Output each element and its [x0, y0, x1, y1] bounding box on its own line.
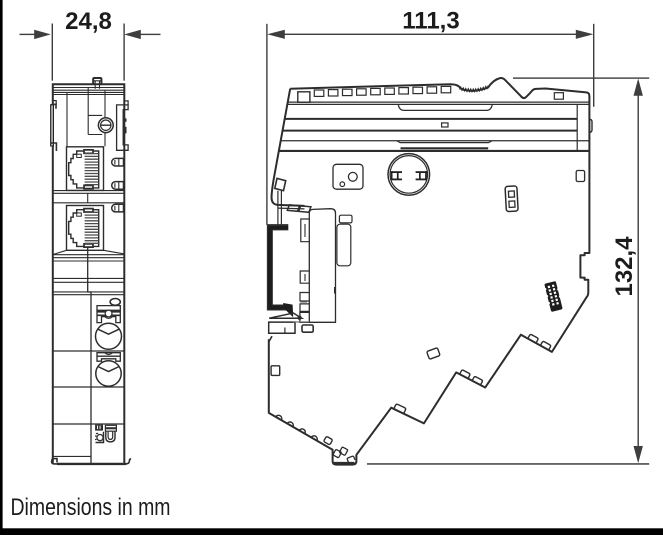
svg-text:Dimensions in mm: Dimensions in mm: [11, 494, 171, 521]
svg-text:111,3: 111,3: [402, 8, 459, 35]
svg-text:24,8: 24,8: [65, 8, 112, 35]
svg-text:132,4: 132,4: [611, 236, 638, 297]
